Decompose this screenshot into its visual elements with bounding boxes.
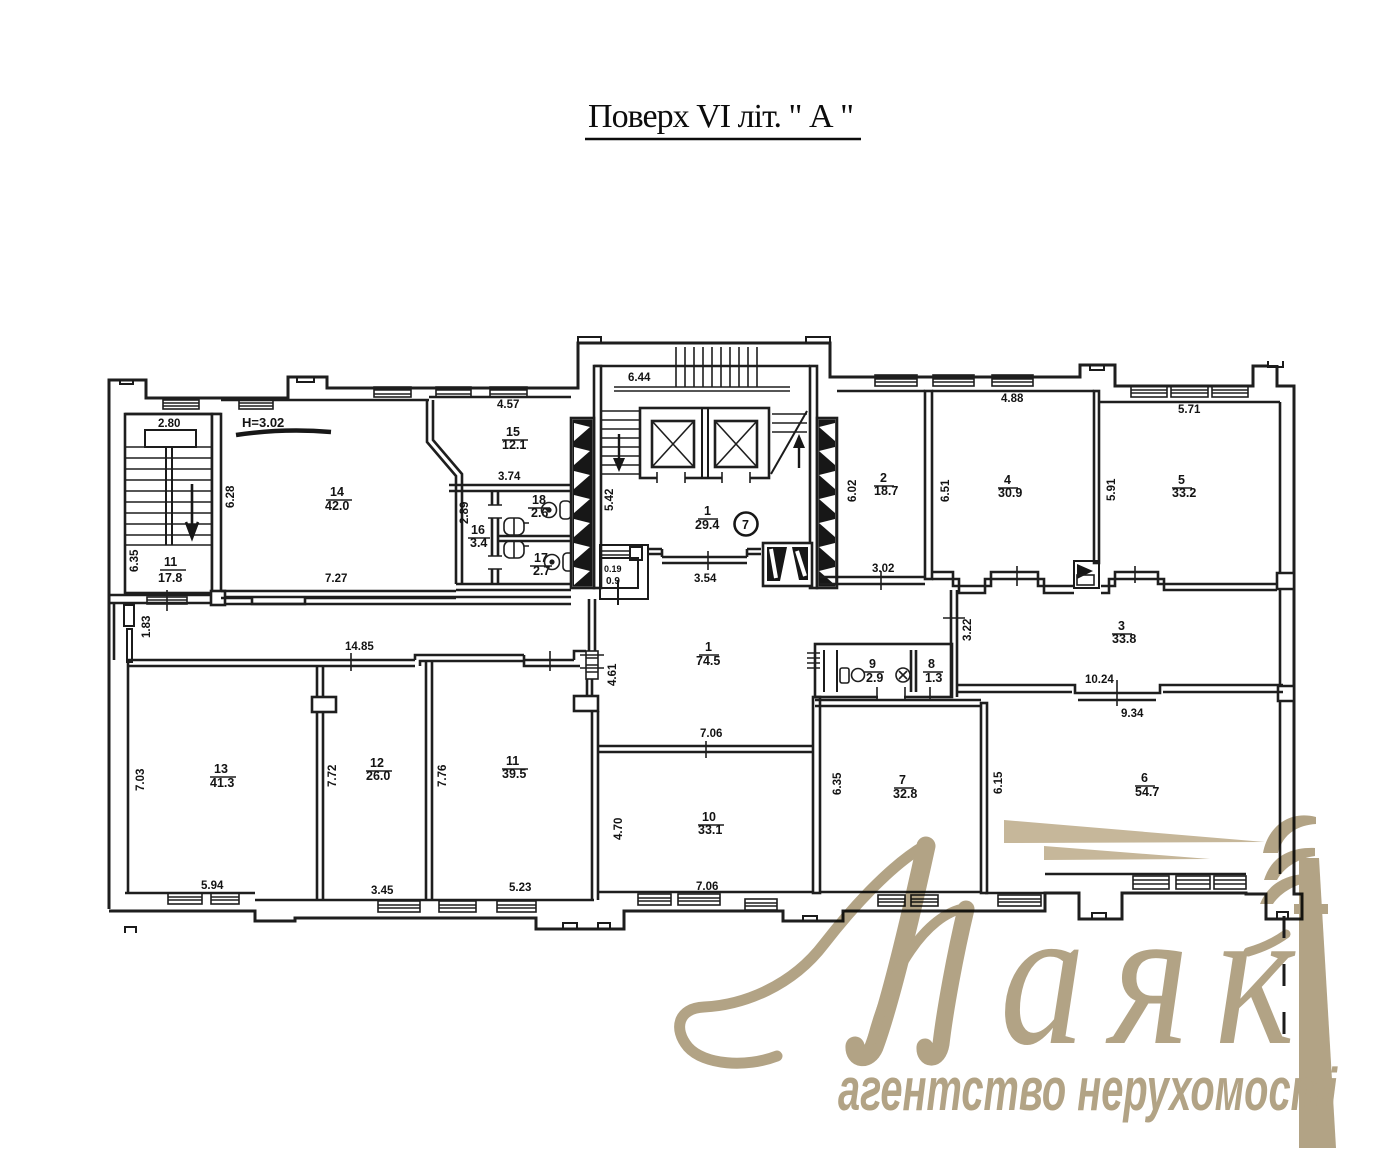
svg-text:5: 5 xyxy=(1178,473,1185,487)
svg-text:4.70: 4.70 xyxy=(613,818,625,840)
svg-text:Поверх VI літ. " А ": Поверх VI літ. " А " xyxy=(588,98,854,135)
svg-text:18.7: 18.7 xyxy=(874,484,898,498)
svg-text:32.8: 32.8 xyxy=(893,787,917,801)
svg-text:54.7: 54.7 xyxy=(1135,785,1159,799)
svg-text:11: 11 xyxy=(164,555,177,569)
svg-text:7.06: 7.06 xyxy=(700,728,722,740)
svg-text:5.94: 5.94 xyxy=(201,880,224,892)
svg-text:2.9: 2.9 xyxy=(866,671,883,685)
svg-text:6.15: 6.15 xyxy=(993,771,1005,794)
svg-text:10.24: 10.24 xyxy=(1085,674,1114,686)
svg-text:7.76: 7.76 xyxy=(437,765,449,787)
svg-text:13: 13 xyxy=(214,762,228,776)
svg-text:26.0: 26.0 xyxy=(366,769,390,783)
svg-text:9: 9 xyxy=(869,657,876,671)
svg-text:3.45: 3.45 xyxy=(371,885,394,897)
svg-text:41.3: 41.3 xyxy=(210,776,234,790)
svg-text:12: 12 xyxy=(370,756,384,770)
svg-text:3.22: 3.22 xyxy=(962,619,974,641)
svg-text:4.88: 4.88 xyxy=(1001,393,1024,405)
svg-text:аяк: аяк xyxy=(1000,866,1320,1087)
svg-text:74.5: 74.5 xyxy=(696,654,720,668)
svg-text:30.9: 30.9 xyxy=(998,486,1022,500)
svg-text:14: 14 xyxy=(330,485,344,499)
svg-text:5.42: 5.42 xyxy=(604,489,616,511)
svg-text:0.9: 0.9 xyxy=(606,576,620,587)
svg-text:29.4: 29.4 xyxy=(695,518,719,532)
svg-text:H=3.02: H=3.02 xyxy=(242,415,284,430)
svg-text:3.74: 3.74 xyxy=(498,471,521,483)
svg-text:6.51: 6.51 xyxy=(940,479,952,502)
svg-text:15: 15 xyxy=(506,425,520,439)
svg-text:42.0: 42.0 xyxy=(325,499,349,513)
svg-text:4.57: 4.57 xyxy=(497,399,519,411)
svg-text:12.1: 12.1 xyxy=(502,438,526,452)
svg-text:7: 7 xyxy=(899,773,906,787)
svg-text:33.1: 33.1 xyxy=(698,823,722,837)
svg-text:14.85: 14.85 xyxy=(345,641,374,653)
svg-text:16: 16 xyxy=(471,523,485,537)
svg-text:4: 4 xyxy=(1004,473,1011,487)
svg-text:5.71: 5.71 xyxy=(1178,404,1201,416)
svg-text:агентство нерухомості: агентство нерухомості xyxy=(838,1056,1338,1123)
svg-text:6.35: 6.35 xyxy=(129,549,141,572)
svg-text:1.3: 1.3 xyxy=(925,671,942,685)
svg-text:39.5: 39.5 xyxy=(502,767,526,781)
svg-text:4.61: 4.61 xyxy=(607,663,619,686)
svg-text:6.02: 6.02 xyxy=(847,480,859,502)
svg-text:6.44: 6.44 xyxy=(628,372,651,384)
svg-text:5.23: 5.23 xyxy=(509,882,531,894)
svg-text:6.35: 6.35 xyxy=(832,772,844,795)
svg-text:3.02: 3.02 xyxy=(872,563,894,575)
svg-text:3.54: 3.54 xyxy=(694,573,717,585)
svg-text:0.19: 0.19 xyxy=(604,564,622,574)
svg-text:33.2: 33.2 xyxy=(1172,486,1196,500)
svg-text:9.34: 9.34 xyxy=(1121,708,1144,720)
svg-text:6: 6 xyxy=(1141,771,1148,785)
svg-text:33.8: 33.8 xyxy=(1112,632,1136,646)
svg-text:6.28: 6.28 xyxy=(225,485,237,508)
svg-text:2.7: 2.7 xyxy=(533,564,550,578)
svg-text:2.89: 2.89 xyxy=(459,502,471,524)
svg-text:7.03: 7.03 xyxy=(135,769,147,791)
svg-text:2.80: 2.80 xyxy=(158,418,180,430)
svg-text:7: 7 xyxy=(742,518,749,532)
svg-text:1.83: 1.83 xyxy=(141,616,153,638)
svg-text:17.8: 17.8 xyxy=(158,571,182,585)
svg-text:11: 11 xyxy=(506,754,519,768)
svg-text:3.4: 3.4 xyxy=(470,536,487,550)
svg-text:2.6: 2.6 xyxy=(531,506,548,520)
svg-text:7.27: 7.27 xyxy=(325,573,347,585)
svg-text:2: 2 xyxy=(880,471,887,485)
svg-text:10: 10 xyxy=(702,810,716,824)
svg-text:3: 3 xyxy=(1118,619,1125,633)
svg-text:8: 8 xyxy=(928,657,935,671)
svg-text:1: 1 xyxy=(704,504,711,518)
svg-text:5.91: 5.91 xyxy=(1106,478,1118,501)
svg-text:7.06: 7.06 xyxy=(696,881,718,893)
svg-text:1: 1 xyxy=(705,640,712,654)
svg-text:7.72: 7.72 xyxy=(327,765,339,787)
